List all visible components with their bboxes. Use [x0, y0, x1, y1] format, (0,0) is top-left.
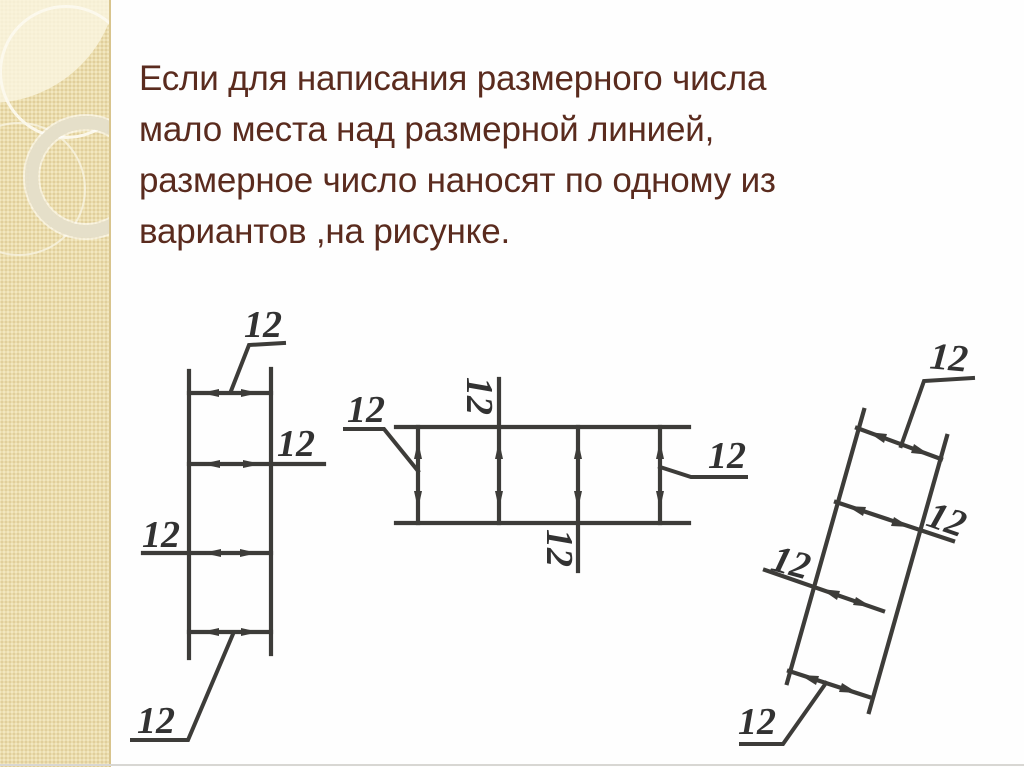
dimensioning-figures: 12 12 12 12	[0, 0, 1024, 767]
dimension-line	[345, 427, 422, 523]
dimension-label: 12	[137, 700, 175, 742]
presentation-slide: Если для написания размерного числа мало…	[0, 0, 1024, 767]
dimension-label: 12	[244, 304, 282, 346]
dimension-label: 12	[767, 538, 815, 588]
dimension-label-rotated: 12	[458, 377, 500, 415]
dimension-label: 12	[277, 423, 315, 465]
dimension-diagram-middle: 12 12 12 12	[345, 377, 746, 571]
extension-lines	[396, 427, 689, 523]
slide-bottom-edge	[0, 764, 1024, 766]
dimension-label: 12	[142, 514, 180, 556]
dimension-label: 12	[928, 335, 970, 380]
dimension-label: 12	[708, 435, 746, 477]
dimension-diagram-left: 12 12 12 12	[132, 304, 324, 742]
dimension-label-rotated: 12	[538, 529, 580, 567]
extension-lines	[189, 369, 271, 658]
dimension-diagram-right: 12 12 12 12	[738, 335, 973, 744]
dimension-label: 12	[738, 701, 776, 743]
dimension-label: 12	[347, 389, 385, 431]
dimension-line	[857, 378, 973, 459]
